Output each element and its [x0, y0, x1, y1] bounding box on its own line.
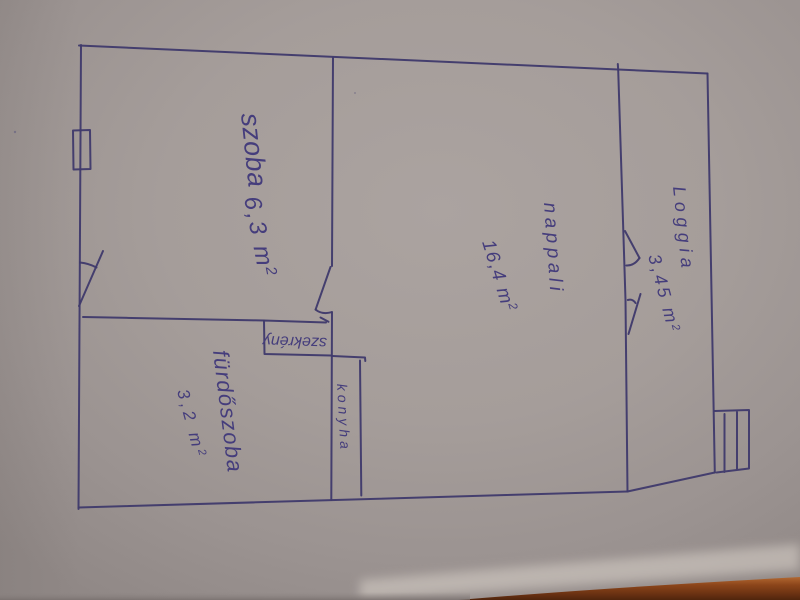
svg-text:6,3 m2: 6,3 m2	[238, 194, 280, 281]
svg-text:szekrény: szekrény	[262, 332, 328, 351]
svg-text:16,4 m2: 16,4 m2	[477, 237, 521, 316]
svg-text:szoba: szoba	[235, 111, 273, 188]
svg-text:Loggia: Loggia	[669, 185, 698, 274]
svg-text:fürdőszoba: fürdőszoba	[208, 349, 248, 475]
svg-text:3,2 m2: 3,2 m2	[173, 387, 210, 462]
svg-text:nappali: nappali	[539, 202, 566, 296]
svg-text:konyha: konyha	[334, 383, 354, 453]
